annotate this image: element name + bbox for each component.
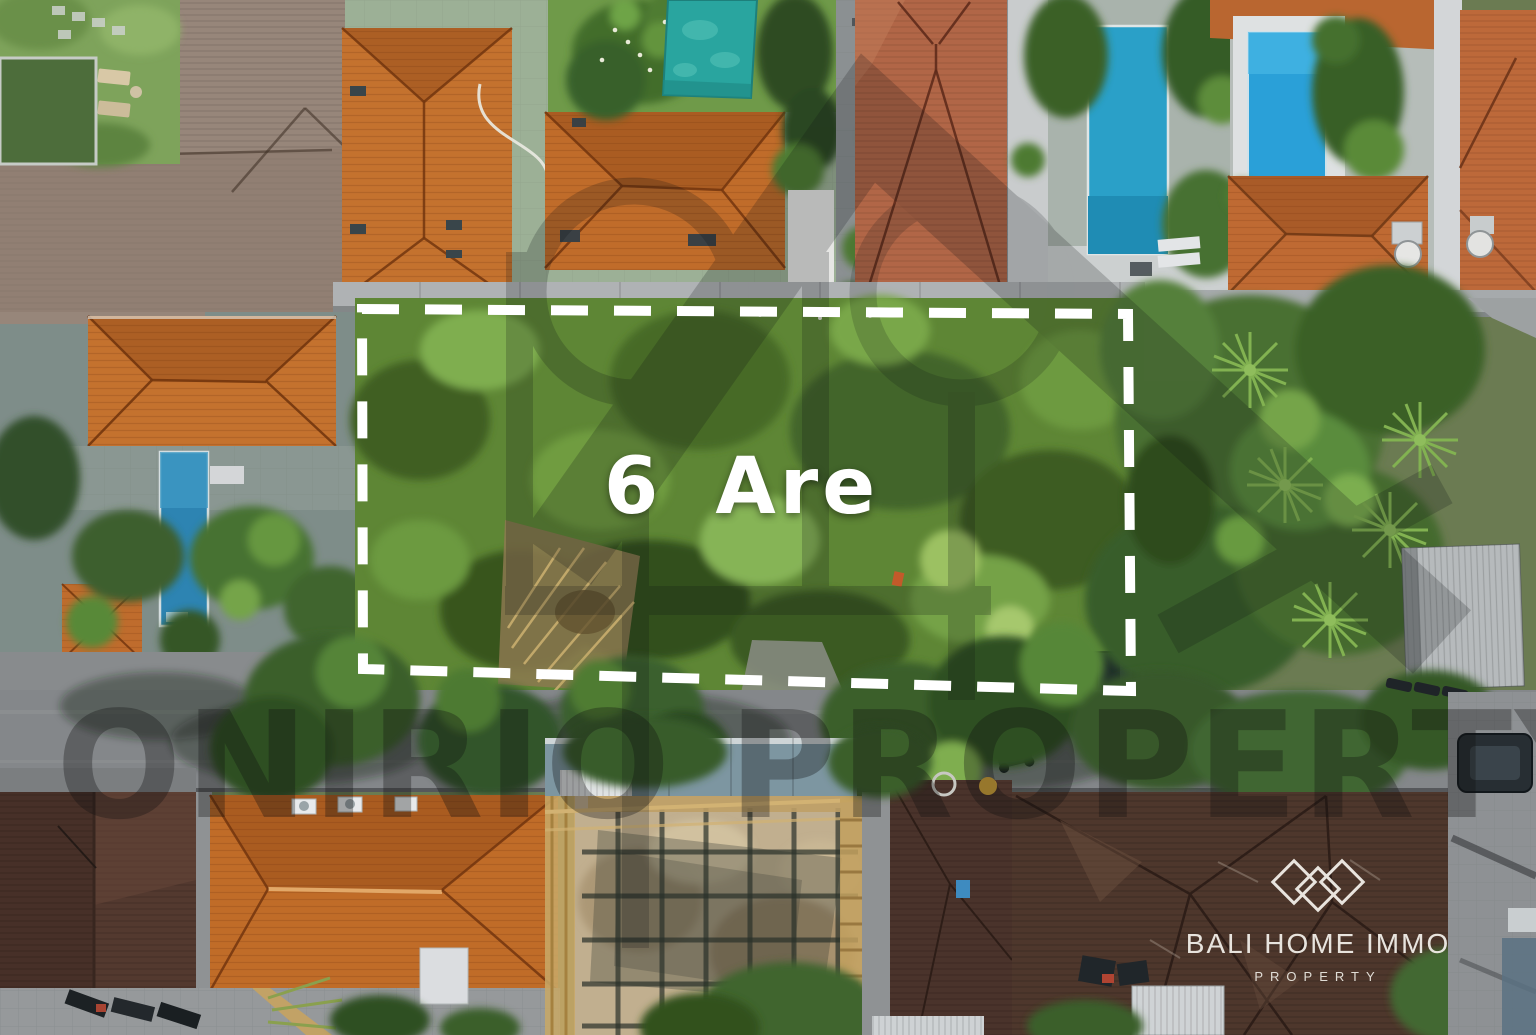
bright-orange-roof <box>210 795 558 991</box>
orange-roof <box>342 28 512 302</box>
right-road <box>1448 692 1536 1035</box>
parked-car <box>1458 734 1532 792</box>
far-right-roof <box>1434 0 1536 302</box>
left-villa-compound <box>0 312 376 670</box>
aerial-scene <box>0 0 1536 1035</box>
garden-pond <box>0 58 96 164</box>
blue-pool-villa <box>1210 0 1448 308</box>
teal-pool <box>663 0 757 98</box>
aerial-property-photo: ONIRIO PROPERTY 6 Are BALI HOME IMMO PRO… <box>0 0 1536 1035</box>
orange-roof <box>88 316 336 446</box>
bottom-left-roofs <box>0 768 560 1035</box>
bottom-right-roof-complex <box>1012 792 1514 1035</box>
